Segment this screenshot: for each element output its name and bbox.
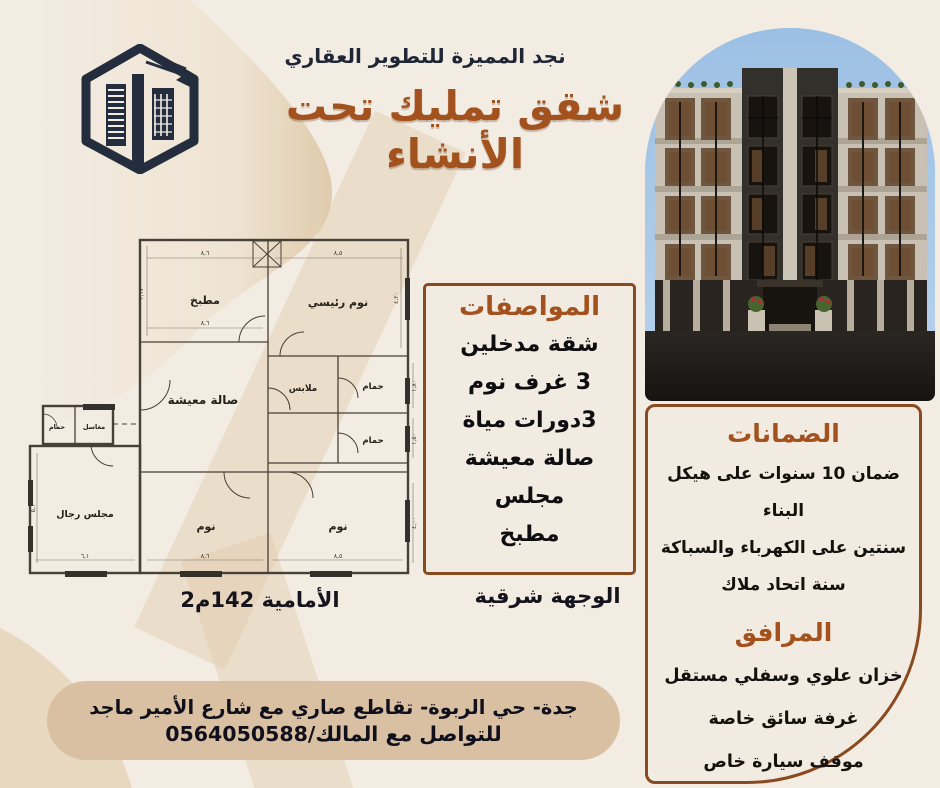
flyer-canvas: نجد المميزة للتطوير العقاري شقق تمليك تح…: [0, 0, 940, 788]
room-label-master-bedroom: نوم رئيسي: [308, 296, 368, 309]
spec-item: مجلس: [426, 478, 633, 516]
dim-bed2-bottom: ٨,٥: [334, 553, 343, 560]
specifications-box: المواصفات شقة مدخلين 3 غرف نوم 3دورات مي…: [423, 283, 636, 575]
dim-bed2-right: ٤,٠٠: [411, 517, 418, 529]
dim-master-right: ٤,٢٠: [393, 292, 400, 304]
shaft-symbol: [253, 241, 281, 267]
room-label-closet: ملابس: [289, 384, 318, 394]
facing-direction-label: الوجهة شرقية: [455, 584, 640, 608]
contact-line: للتواصل مع المالك/0564050588: [47, 722, 620, 746]
spec-item: شقة مدخلين: [426, 326, 633, 364]
facility-item: موقف سيارة خاص: [648, 741, 919, 784]
room-label-bath1: حمام: [362, 382, 383, 392]
guarantees-facilities-box: الضمانات ضمان 10 سنوات على هيكل البناء س…: [645, 404, 922, 784]
dim-kitchen-left: ٣,١٧: [138, 287, 145, 300]
contact-banner: جدة- حي الربوة- تقاطع صاري مع شارع الأمي…: [47, 681, 620, 760]
spec-item: 3دورات مياة: [426, 402, 633, 440]
guarantee-item: ضمان 10 سنوات على هيكل البناء: [648, 456, 919, 530]
floor-plan-inner-walls: [75, 240, 408, 573]
guarantee-item: سنة اتحاد ملاك: [648, 567, 919, 604]
dim-majlis-left: ٥,١: [30, 504, 37, 513]
dim-bed1-bottom: ٨,٦: [201, 553, 210, 560]
dim-majlis-bottom: ٦,١: [81, 553, 90, 560]
dim-kitchen-bottom: ٨,٦: [201, 320, 210, 327]
room-label-majlis: مجلس رجال: [56, 509, 114, 520]
address-line: جدة- حي الربوة- تقاطع صاري مع شارع الأمي…: [47, 696, 620, 719]
room-label-bath2: حمام: [362, 436, 383, 446]
guarantee-item: سنتين على الكهرباء والسباكة: [648, 530, 919, 567]
company-name: نجد المميزة للتطوير العقاري: [240, 44, 610, 68]
spec-item: مطبخ: [426, 516, 633, 554]
dim-master-top: ٨,٥: [334, 250, 343, 257]
floor-plan: مطبخ نوم رئيسي صالة معيشة ملابس حمام حما…: [25, 228, 420, 588]
dim-bath1-right: ١,٨٠: [411, 380, 418, 392]
facilities-title: المرافق: [648, 618, 919, 647]
dim-kitchen-top: ٨,٦: [201, 250, 210, 257]
specifications-title: المواصفات: [426, 292, 633, 322]
building-render-illustration: [645, 28, 935, 401]
room-label-bed2: نوم: [328, 520, 347, 533]
building-photo: [645, 28, 935, 401]
room-label-sinks: مغاسل: [83, 423, 105, 431]
company-logo-hexagon-buildings-icon: [80, 44, 200, 174]
room-label-living: صالة معيشة: [168, 393, 239, 407]
facility-item: خزان علوي وسفلي مستقل: [648, 655, 919, 698]
spec-item: 3 غرف نوم: [426, 364, 633, 402]
guarantees-title: الضمانات: [648, 419, 919, 448]
room-label-bath3: حمام: [49, 423, 66, 431]
dim-bath2-right: ١,٥٠: [411, 433, 418, 445]
facility-item: غرفة سائق خاصة: [648, 698, 919, 741]
room-label-bed1: نوم: [196, 520, 215, 533]
spec-item: صالة معيشة: [426, 440, 633, 478]
page-title: شقق تمليك تحت الأنشاء: [255, 82, 655, 178]
frontage-area-label: الأمامية 142م2: [140, 588, 380, 612]
room-label-kitchen: مطبخ: [190, 294, 220, 307]
